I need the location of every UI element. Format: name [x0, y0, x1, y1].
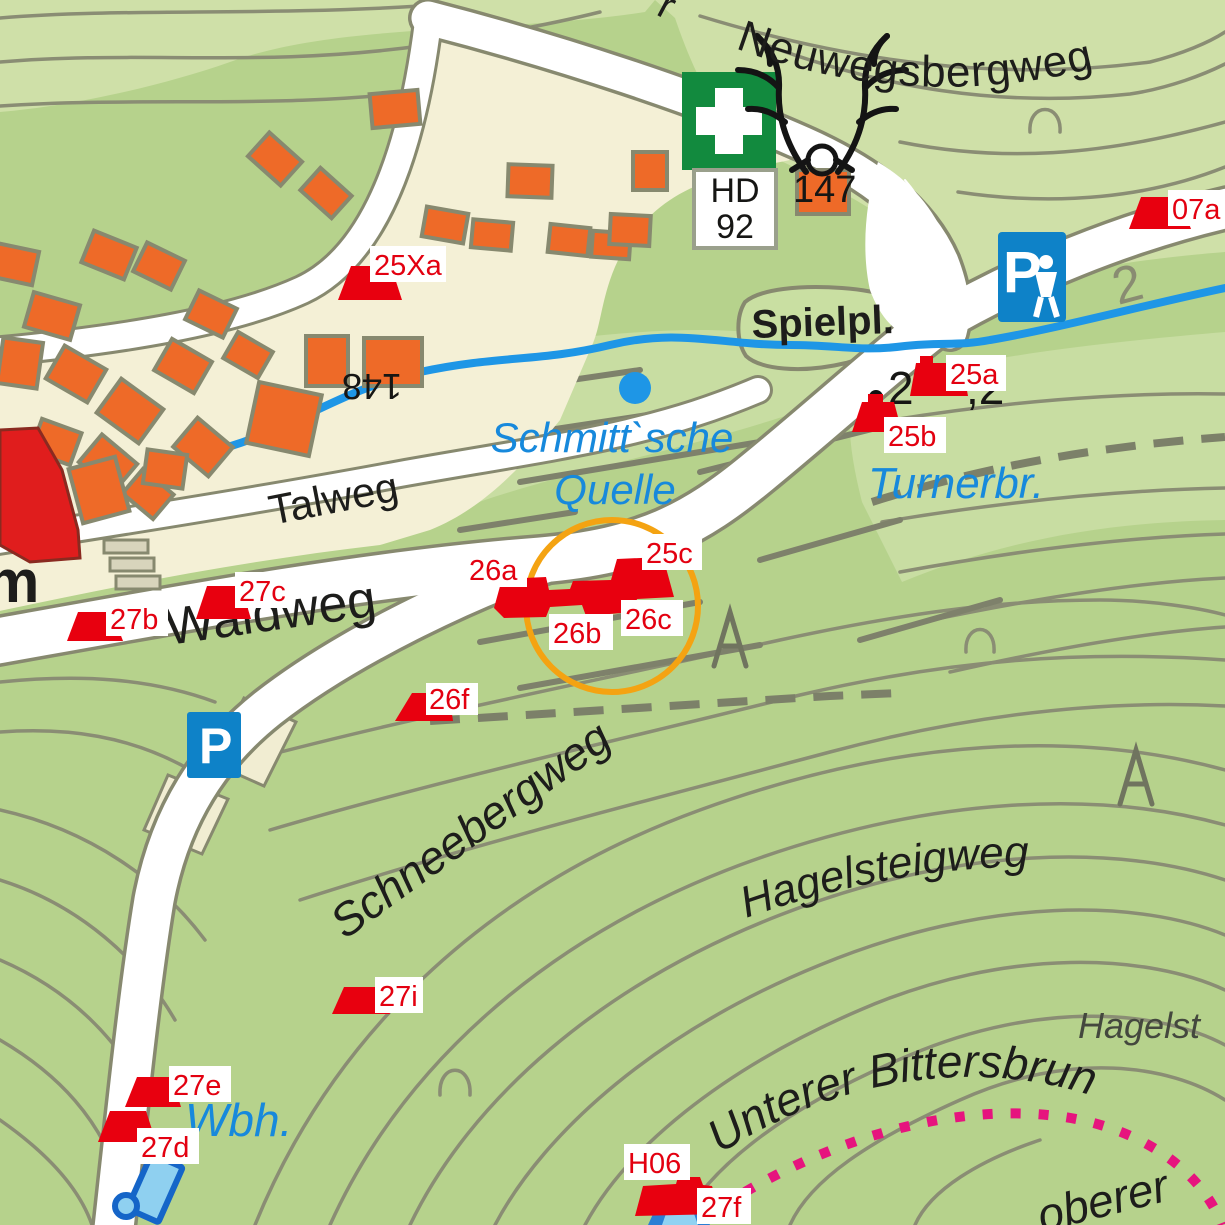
marker-label-26b[interactable]: 26b [549, 614, 613, 650]
svg-text:27f: 27f [701, 1192, 742, 1224]
svg-text:27e: 27e [173, 1070, 221, 1102]
marker-label-27c[interactable]: 27c [235, 572, 293, 608]
first-aid-code-line1: HD [710, 172, 759, 210]
parking-sign: P [187, 712, 241, 778]
marker-label-26f[interactable]: 26f [426, 683, 478, 716]
parking-walk-sign: P [998, 232, 1066, 322]
marker-label-07a[interactable]: 07a [1168, 190, 1224, 226]
svg-text:26f: 26f [429, 684, 470, 716]
street-hagelst-cut: Hagelst [1078, 1005, 1202, 1046]
svg-text:27c: 27c [239, 576, 286, 608]
house-number-147: 147 [793, 169, 856, 211]
svg-text:26a: 26a [469, 555, 518, 587]
svg-text:25c: 25c [646, 538, 693, 570]
svg-text:H06: H06 [628, 1148, 681, 1180]
svg-text:27d: 27d [141, 1132, 189, 1164]
first-aid-sign: HD 92 [682, 72, 776, 248]
marker-label-27i[interactable]: 27i [375, 977, 423, 1013]
marker-label-27f[interactable]: 27f [697, 1188, 751, 1224]
marker-label-25c[interactable]: 25c [642, 534, 702, 570]
house-number-148: 148 [342, 366, 402, 407]
marker-label-26c[interactable]: 26c [621, 600, 683, 636]
topographic-map: HD 92 P P N [0, 0, 1225, 1225]
marker-label-27b[interactable]: 27b [106, 600, 168, 636]
svg-text:25a: 25a [950, 359, 999, 391]
street-m-cut: m [0, 548, 39, 615]
svg-text:27i: 27i [379, 981, 418, 1013]
svg-text:27b: 27b [110, 604, 158, 636]
marker-label-25b[interactable]: 25b [884, 417, 946, 453]
svg-text:26b: 26b [553, 618, 601, 650]
svg-text:07a: 07a [1172, 194, 1221, 226]
marker-label-26a[interactable]: 26a [465, 551, 527, 587]
marker-label-25Xa[interactable]: 25Xa [370, 246, 446, 282]
marker-label-27d[interactable]: 27d [137, 1128, 199, 1164]
marker-label-H06[interactable]: H06 [624, 1144, 690, 1180]
water-turnerbruecke: Turnerbr. [868, 459, 1044, 508]
place-spielplatz: Spielpl. [751, 298, 895, 347]
water-schmittsche-quelle-line2: Quelle [554, 466, 675, 513]
marker-label-25a[interactable]: 25a [946, 355, 1006, 391]
spring-dot-icon [619, 372, 651, 404]
svg-text:25Xa: 25Xa [374, 250, 443, 282]
marker-label-27e[interactable]: 27e [169, 1066, 231, 1102]
parking-p-label: P [199, 718, 232, 774]
first-aid-code-line2: 92 [716, 208, 754, 246]
svg-text:26c: 26c [625, 604, 672, 636]
svg-text:25b: 25b [888, 421, 936, 453]
water-schmittsche-quelle-line1: Schmitt`sche [491, 414, 734, 461]
